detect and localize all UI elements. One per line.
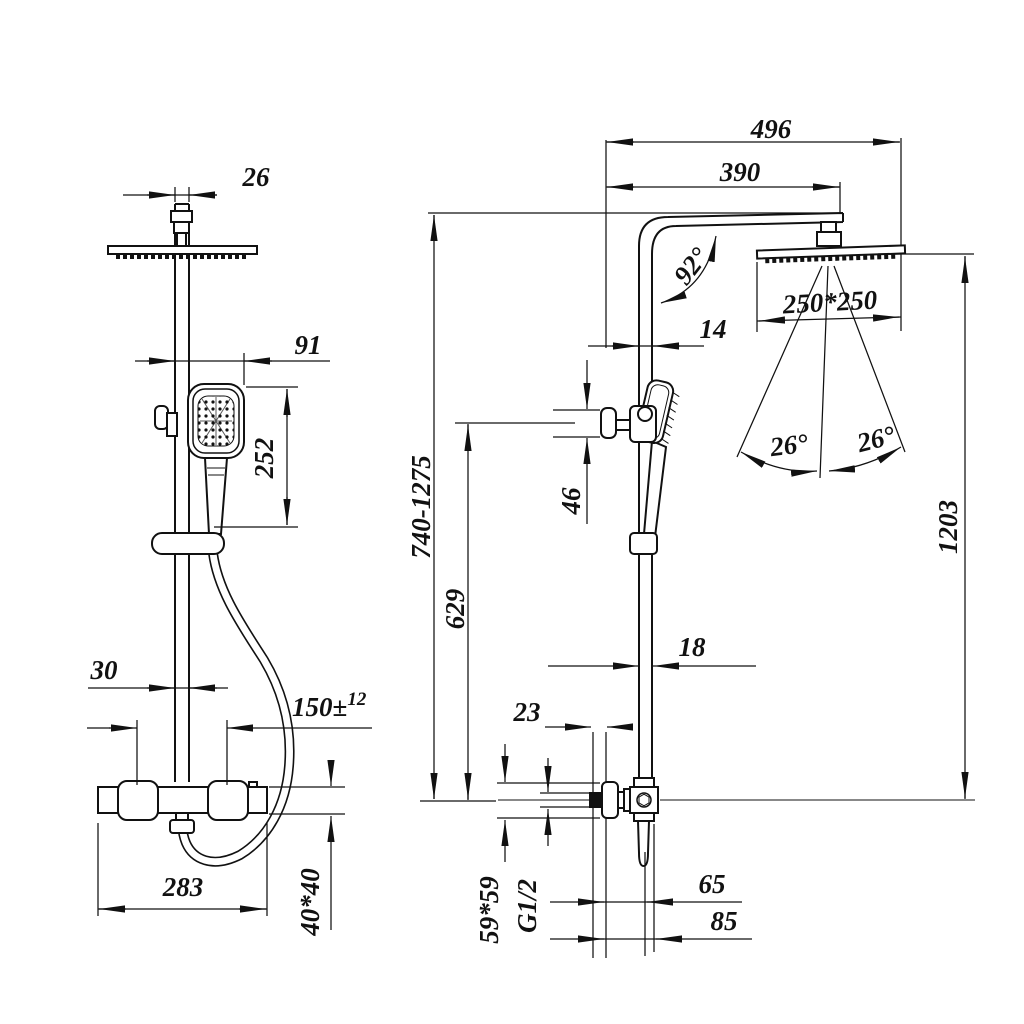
dim-holder-height-label: 46 bbox=[556, 487, 586, 516]
valve-handle-left bbox=[118, 781, 158, 820]
diverter-knob bbox=[155, 406, 177, 436]
side-view: 496 390 92° 250*250 26° 26° 14 bbox=[406, 114, 975, 958]
dim-upper-pipe-depth-label: 14 bbox=[700, 314, 727, 344]
valve-handle-right bbox=[208, 781, 248, 820]
dim-lower-pipe-depth-label: 18 bbox=[679, 632, 707, 662]
dim-escutcheon-size-label: 59*59 bbox=[474, 876, 504, 944]
dim-head-connector-width-label: 26 bbox=[242, 162, 271, 192]
spout bbox=[638, 821, 649, 866]
hand-shower-handle-side bbox=[644, 441, 666, 537]
dim-wall-clearance-label: 23 bbox=[513, 697, 541, 727]
front-view: 26 91 252 30 150±12 283 bbox=[87, 162, 372, 937]
holder-knob-side bbox=[601, 406, 656, 442]
overhead-shower-front bbox=[108, 211, 257, 259]
dim-column-profile-label: 40*40 bbox=[295, 868, 325, 937]
riser-pipe-front bbox=[175, 204, 189, 782]
dim-spout-reach-label: 65 bbox=[699, 869, 726, 899]
dim-spray-angle-left-label: 26° bbox=[767, 428, 809, 463]
dim-body-depth-label: 85 bbox=[711, 906, 738, 936]
thermostatic-valve-front bbox=[98, 781, 267, 833]
dim-inlet-thread-label: G1/2 bbox=[512, 879, 542, 933]
dim-handshower-offset-label: 91 bbox=[295, 330, 322, 360]
dim-pipe-width-label: 30 bbox=[90, 655, 119, 685]
hand-shower-handle bbox=[205, 458, 227, 534]
shower-head-plate bbox=[108, 246, 257, 254]
wall-escutcheon bbox=[602, 782, 618, 818]
side-dimensions: 496 390 92° 250*250 26° 26° 14 bbox=[406, 114, 974, 956]
shower-system-technical-drawing: 26 91 252 30 150±12 283 bbox=[0, 0, 1024, 1024]
hand-shower-front bbox=[188, 384, 244, 534]
dim-arm-angle-label: 92° bbox=[668, 242, 715, 290]
slide-holder-front bbox=[152, 533, 224, 554]
drawing-canvas: 26 91 252 30 150±12 283 bbox=[0, 0, 1024, 1024]
dim-handshower-length-label: 252 bbox=[249, 438, 279, 480]
dim-column-height-range-label: 740-1275 bbox=[406, 455, 436, 559]
dim-head-size-label: 250*250 bbox=[781, 285, 878, 320]
dim-arm-reach-total-label: 496 bbox=[750, 114, 792, 144]
dim-arm-length-label: 390 bbox=[719, 157, 761, 187]
dim-slide-height-label: 629 bbox=[440, 588, 470, 629]
dim-valve-width-label: 283 bbox=[162, 872, 204, 902]
inlet-thread bbox=[589, 792, 602, 808]
dim-inlet-spacing-label: 150±12 bbox=[292, 689, 367, 723]
thermostatic-valve-side bbox=[589, 778, 658, 866]
slide-holder-side bbox=[630, 533, 657, 554]
hose-connector-nut bbox=[170, 820, 194, 833]
dim-overall-height-label: 1203 bbox=[933, 500, 963, 554]
